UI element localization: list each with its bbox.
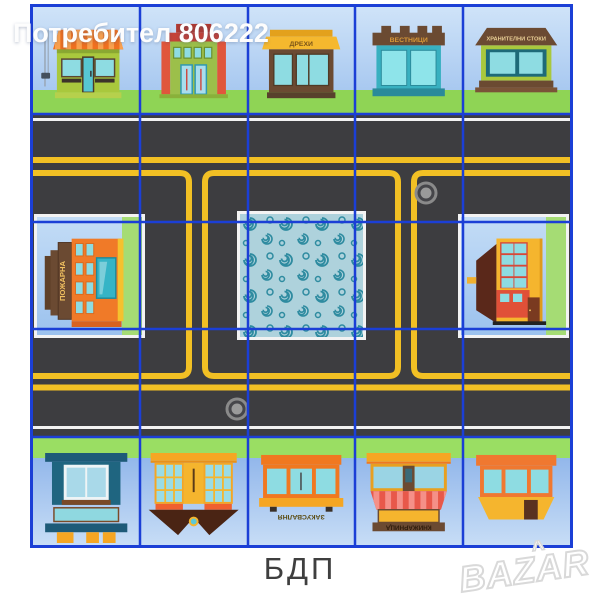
snack-bar-sign: ЗАКУСВАЛНЯ <box>278 513 325 520</box>
play-mat: ДРЕХИ ВЕСТНИЦИ ХРАНИТЕЛНИ СТОКИ <box>30 4 573 548</box>
cell-corner-house <box>458 214 569 338</box>
center-ornament-tile <box>237 211 366 340</box>
listing-photo: { "watermark": "Потребител 806222", "cap… <box>0 0 600 600</box>
corner-house-building <box>467 223 559 335</box>
fire-station-building: ПОЖАРНА <box>39 223 135 335</box>
bazar-logo: BAZAR ^ <box>457 541 593 601</box>
clothes-shop-sign: ДРЕХИ <box>290 41 314 48</box>
bazar-logo-text: BAZAR <box>457 541 592 600</box>
orange-kiosk-building <box>467 453 565 543</box>
newsstand-building: ВЕСТНИЦИ <box>359 20 458 106</box>
swirl-pattern <box>240 214 363 337</box>
cell-fire-station: ПОЖАРНА <box>34 214 145 338</box>
cell-bottom-bay-window <box>140 437 248 545</box>
bay-window-building <box>144 453 243 543</box>
bookstore-building: КНИЖАРНИЦА <box>359 453 458 543</box>
cell-top-grocery: ХРАНИТЕЛНИ СТОКИ <box>463 7 570 114</box>
grocery-sign: ХРАНИТЕЛНИ СТОКИ <box>487 37 546 43</box>
newsstand-sign: ВЕСТНИЦИ <box>390 37 428 44</box>
cell-bottom-teal-house <box>33 437 140 545</box>
cell-bottom-bookstore: КНИЖАРНИЦА <box>355 437 463 545</box>
cell-bottom-snack-bar: ЗАКУСВАЛНЯ <box>248 437 355 545</box>
snack-bar-building: ЗАКУСВАЛНЯ <box>252 453 350 543</box>
photo-caption: БДП <box>264 551 337 587</box>
grocery-building: ХРАНИТЕЛНИ СТОКИ <box>467 20 565 106</box>
fire-station-sign: ПОЖАРНА <box>58 260 67 301</box>
teal-house-building <box>37 453 135 543</box>
cell-top-newsstand: ВЕСТНИЦИ <box>355 7 463 114</box>
user-watermark: Потребител 806222 <box>13 18 269 49</box>
bookstore-sign: КНИЖАРНИЦА <box>386 523 432 530</box>
cell-bottom-orange-kiosk <box>463 437 570 545</box>
